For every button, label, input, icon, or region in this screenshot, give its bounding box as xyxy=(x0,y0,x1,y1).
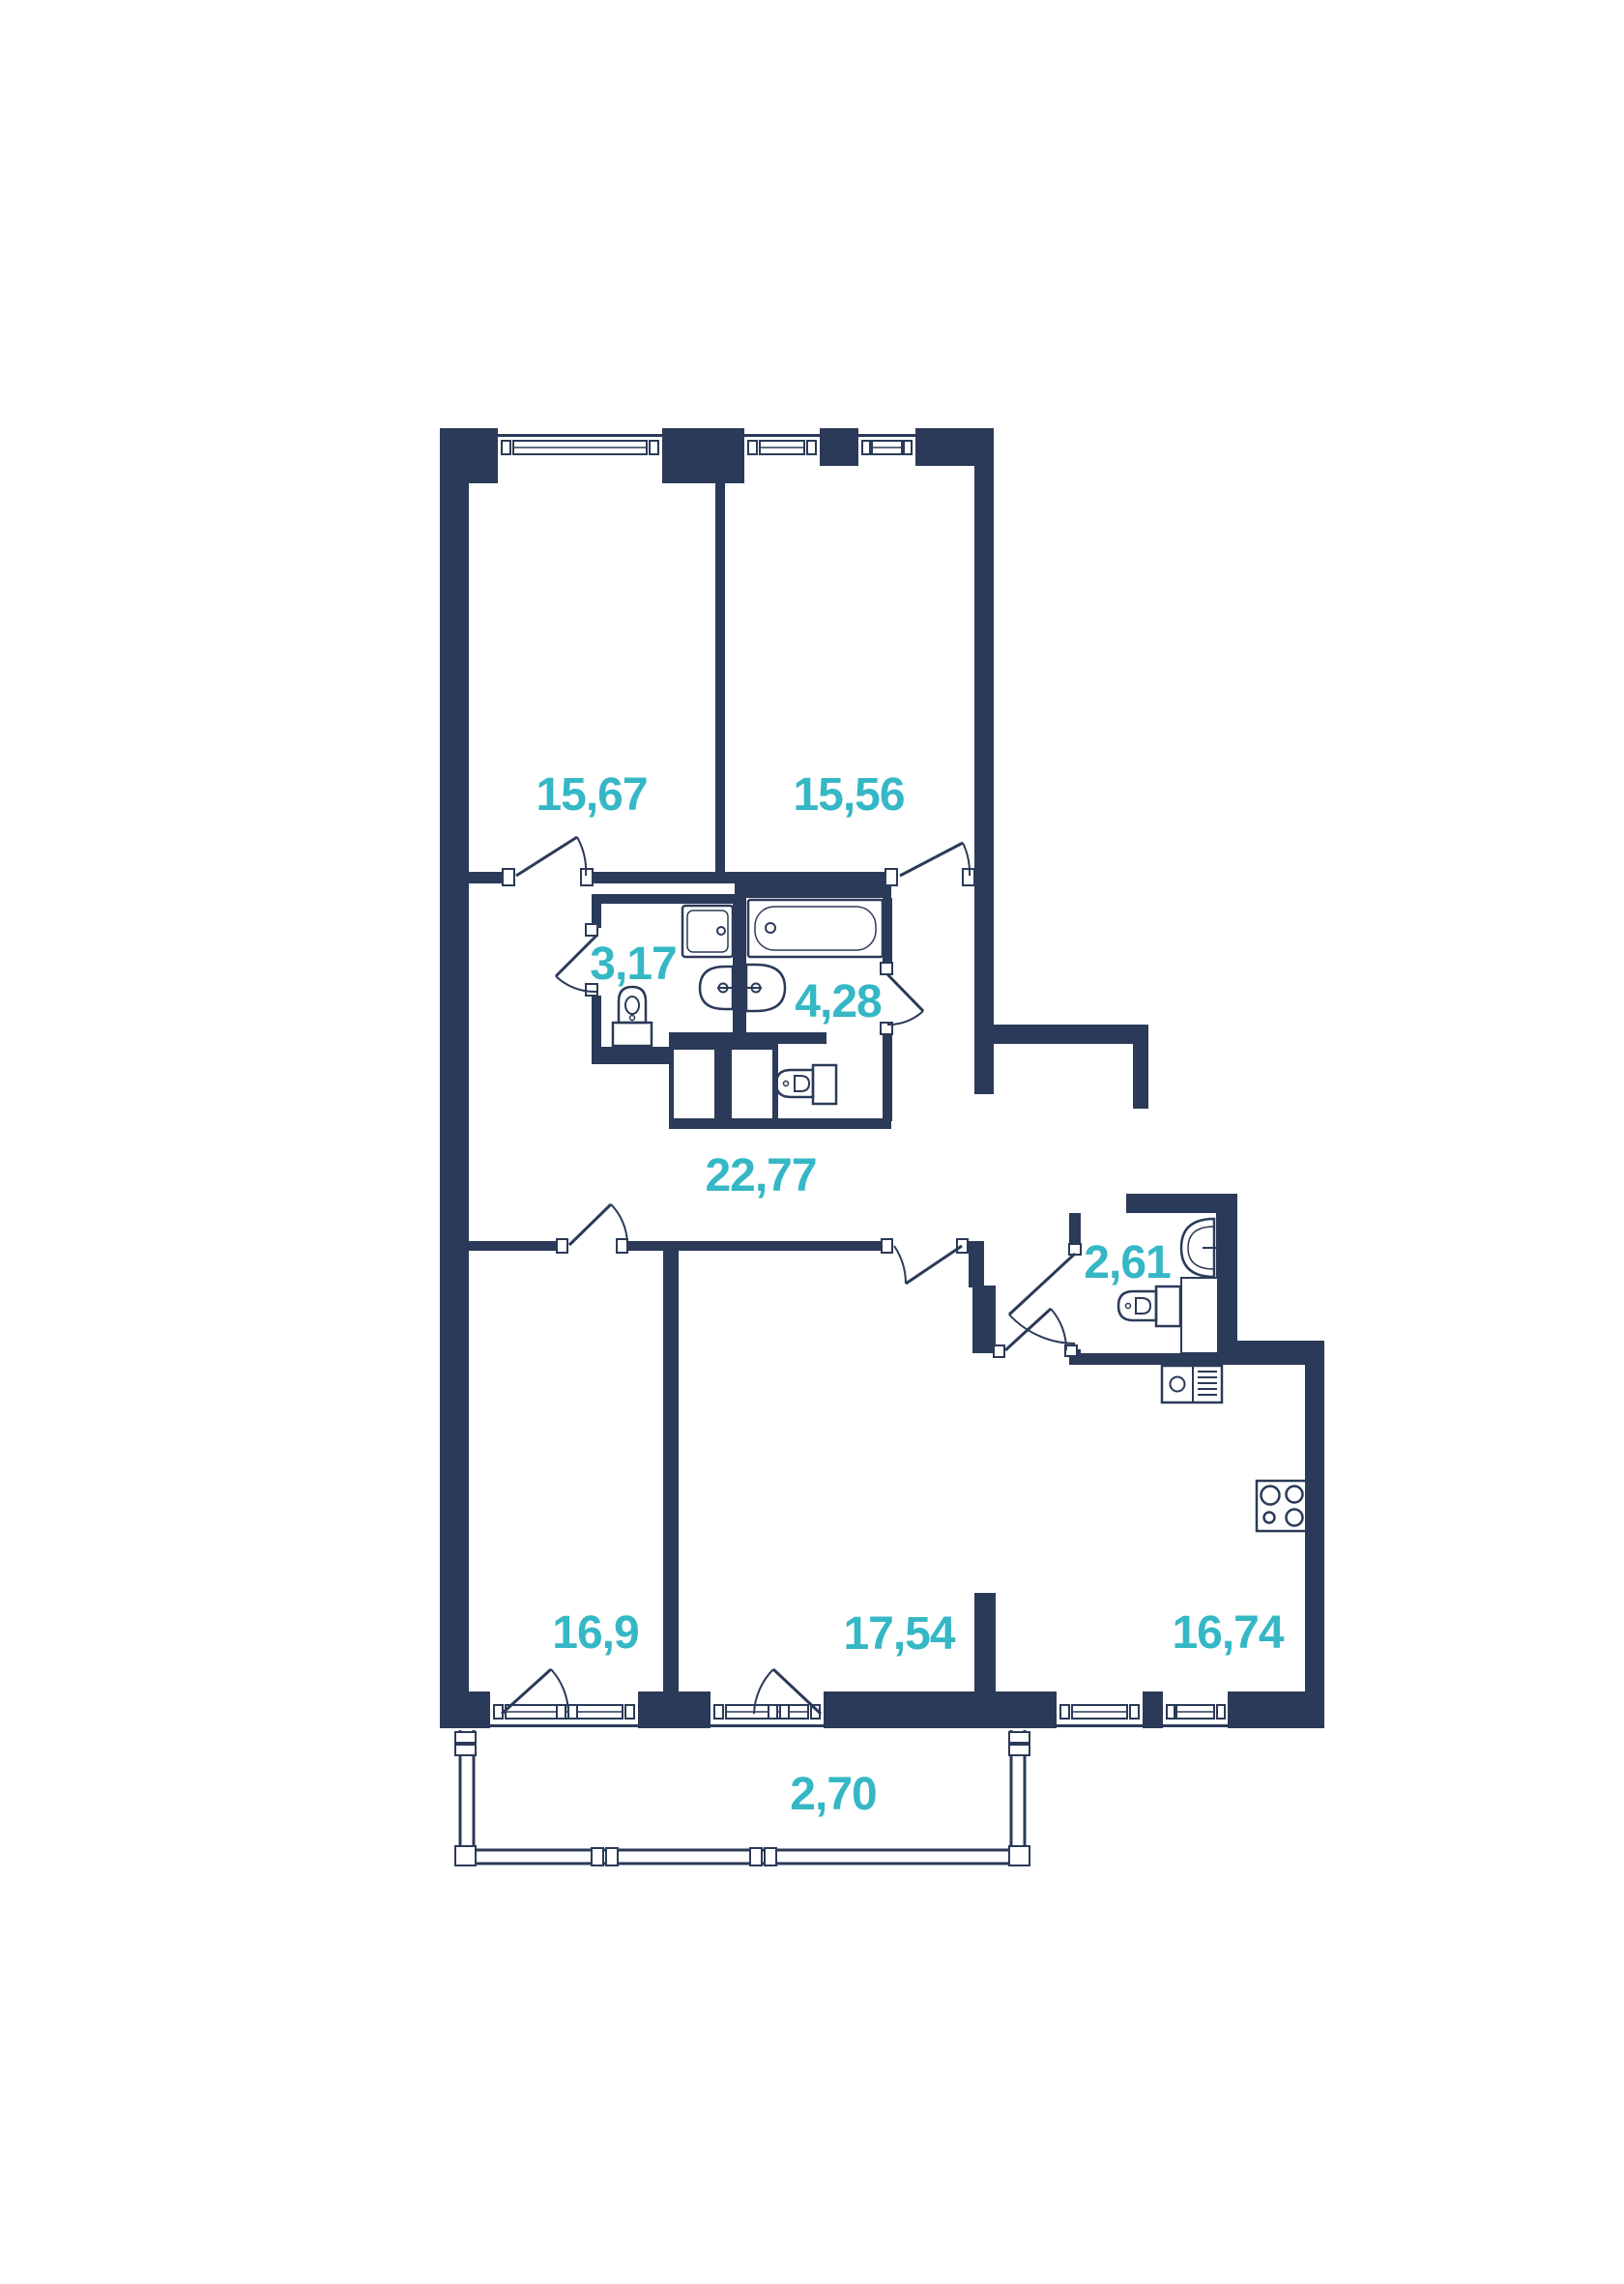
window-icon xyxy=(1163,1697,1228,1728)
toilet-icon xyxy=(776,1065,836,1104)
room-label-room-bottom-middle: 17,54 xyxy=(843,1608,955,1660)
door-icon xyxy=(900,843,970,876)
room-label-bedroom-top-left: 15,67 xyxy=(536,769,647,821)
shower-cabin-icon xyxy=(682,906,733,957)
room-label-wc: 2,61 xyxy=(1084,1237,1171,1288)
balcony-outline xyxy=(455,1730,1029,1865)
window-icon xyxy=(744,432,820,466)
room-label-kitchen-living: 16,74 xyxy=(1172,1607,1284,1659)
floor-plan: 15,67 15,56 3,17 4,28 22,77 2,61 16,9 17… xyxy=(0,0,1624,2284)
kitchen-sink-icon xyxy=(1162,1366,1222,1402)
window-icon xyxy=(858,432,915,466)
window-icon xyxy=(498,432,662,466)
stove-icon xyxy=(1257,1481,1307,1531)
door-icon xyxy=(516,837,586,876)
door-icon xyxy=(887,974,923,1025)
room-label-bathroom-large: 4,28 xyxy=(795,976,882,1027)
fixtures xyxy=(613,900,1307,1531)
room-labels: 15,67 15,56 3,17 4,28 22,77 2,61 16,9 17… xyxy=(536,769,1284,1820)
balcony-door-window-icon xyxy=(490,1697,638,1728)
room-label-hallway: 22,77 xyxy=(705,1150,816,1201)
floor-plan-page: 15,67 15,56 3,17 4,28 22,77 2,61 16,9 17… xyxy=(0,0,1624,2284)
toilet-icon xyxy=(1118,1287,1180,1326)
bathtub-icon xyxy=(748,900,883,957)
door-icon xyxy=(894,1246,962,1284)
window-icon xyxy=(1057,1697,1143,1728)
room-label-room-bottom-left: 16,9 xyxy=(552,1607,638,1659)
door-icon xyxy=(1005,1309,1066,1350)
room-label-balcony: 2,70 xyxy=(790,1769,876,1820)
room-label-bathroom-small: 3,17 xyxy=(590,939,676,990)
door-icon xyxy=(1009,1254,1075,1344)
walls xyxy=(440,428,1324,1728)
room-label-bedroom-top-right: 15,56 xyxy=(793,769,904,821)
duct-icon xyxy=(1181,1278,1218,1353)
toilet-icon xyxy=(613,987,652,1046)
